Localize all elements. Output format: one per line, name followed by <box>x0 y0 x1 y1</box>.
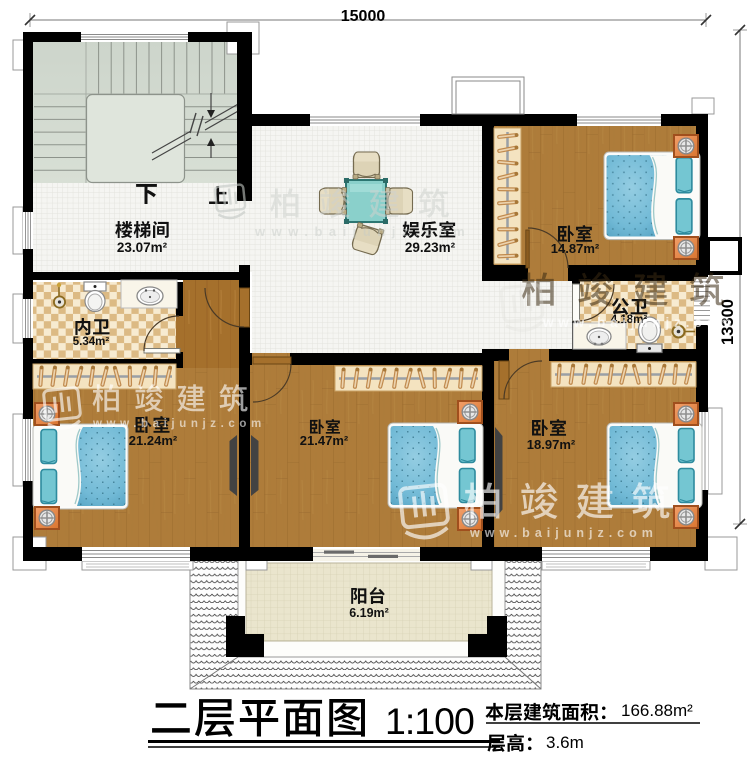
svg-text:5.34m²: 5.34m² <box>73 336 110 348</box>
svg-text:6.19m²: 6.19m² <box>349 606 389 620</box>
svg-text:23.07m²: 23.07m² <box>117 240 168 255</box>
svg-text:18.97m²: 18.97m² <box>527 437 576 452</box>
svg-text:www.baijunjz.com: www.baijunjz.com <box>542 315 736 330</box>
svg-text:29.23m²: 29.23m² <box>405 240 456 255</box>
svg-text:21.24m²: 21.24m² <box>129 433 178 448</box>
svg-text:21.47m²: 21.47m² <box>300 433 349 448</box>
svg-text:www.baijunjz.com: www.baijunjz.com <box>254 224 471 239</box>
svg-text:14.87m²: 14.87m² <box>551 241 600 256</box>
svg-text:15000: 15000 <box>341 8 386 25</box>
svg-text:166.88m²: 166.88m² <box>621 701 693 720</box>
svg-text:www.baijunjz.com: www.baijunjz.com <box>469 526 658 540</box>
svg-text:3.6m: 3.6m <box>546 733 584 752</box>
svg-text:1:100: 1:100 <box>385 700 474 742</box>
svg-text:www.baijunjz.com: www.baijunjz.com <box>92 418 266 430</box>
